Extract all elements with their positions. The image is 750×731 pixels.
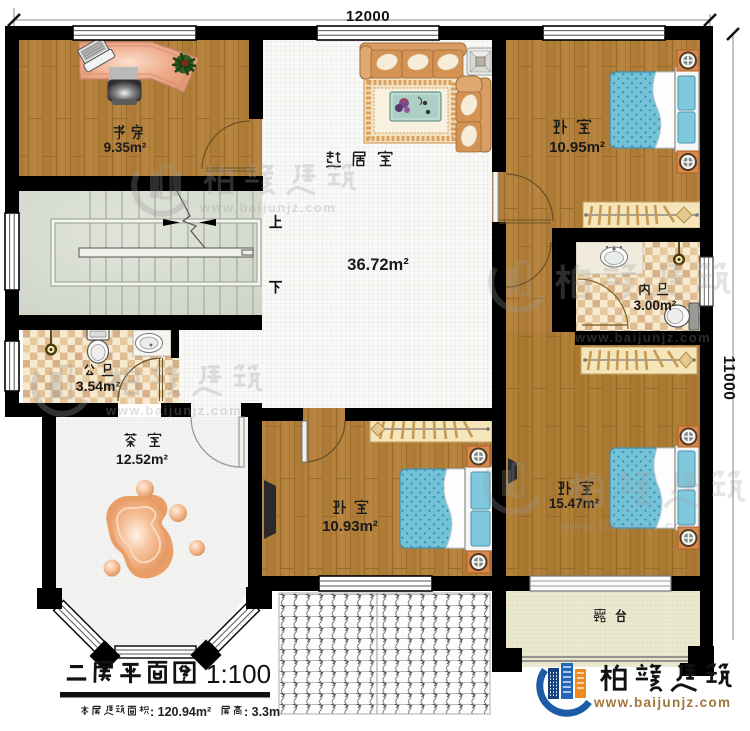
svg-text:: 120.94m²: : 120.94m² [150, 705, 211, 719]
svg-text:3.00m²: 3.00m² [634, 298, 677, 313]
svg-text:www.baijunjz.com: www.baijunjz.com [593, 695, 731, 710]
svg-text:www.baijunjz.com: www.baijunjz.com [105, 403, 242, 418]
svg-text:www.baijunjz.com: www.baijunjz.com [199, 200, 336, 215]
svg-text:9.35m²: 9.35m² [104, 140, 147, 155]
svg-text:: 3.3m: : 3.3m [244, 705, 280, 719]
svg-text:10.95m²: 10.95m² [549, 139, 605, 156]
svg-text:12000: 12000 [346, 8, 390, 25]
svg-text:www.baijunjz.com: www.baijunjz.com [559, 518, 696, 533]
svg-text:12.52m²: 12.52m² [116, 451, 168, 467]
svg-text:36.72m²: 36.72m² [347, 256, 409, 274]
svg-text:1:100: 1:100 [206, 659, 271, 689]
svg-text:11000: 11000 [720, 356, 737, 401]
svg-text:10.93m²: 10.93m² [322, 518, 378, 535]
svg-text:www.baijunjz.com: www.baijunjz.com [574, 330, 711, 345]
